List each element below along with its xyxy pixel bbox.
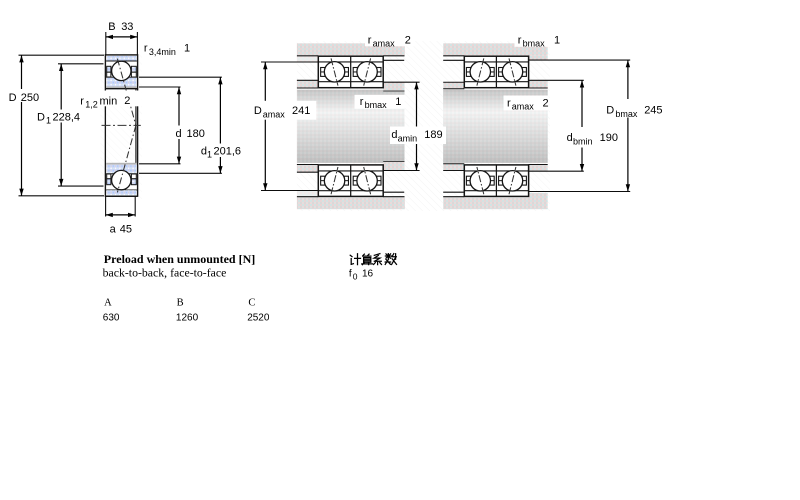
svg-text:190: 190 xyxy=(600,132,618,144)
svg-text:1260: 1260 xyxy=(176,312,199,323)
svg-text:245: 245 xyxy=(644,105,662,117)
svg-text:1: 1 xyxy=(184,43,190,55)
svg-text:amax: amax xyxy=(373,38,396,48)
svg-text:a: a xyxy=(110,224,117,236)
svg-text:2: 2 xyxy=(543,98,549,110)
svg-text:33: 33 xyxy=(121,21,133,33)
svg-text:bmax: bmax xyxy=(615,109,638,119)
svg-text:B: B xyxy=(108,21,115,33)
svg-text:r: r xyxy=(368,34,372,46)
svg-text:D: D xyxy=(37,111,45,123)
svg-text:r: r xyxy=(144,43,148,55)
svg-text:180: 180 xyxy=(187,128,205,140)
svg-text:bmin: bmin xyxy=(573,136,593,146)
svg-text:back-to-back, face-to-face: back-to-back, face-to-face xyxy=(103,266,227,280)
svg-text:1: 1 xyxy=(207,150,212,160)
svg-text:2520: 2520 xyxy=(247,312,270,323)
svg-text:r: r xyxy=(507,98,511,110)
svg-text:250: 250 xyxy=(21,92,39,104)
svg-text:0: 0 xyxy=(353,271,358,281)
svg-text:f: f xyxy=(349,268,352,279)
svg-text:2: 2 xyxy=(405,34,411,46)
svg-text:d: d xyxy=(567,132,573,144)
svg-text:min: min xyxy=(100,96,118,108)
svg-text:amax: amax xyxy=(263,109,286,119)
svg-text:241: 241 xyxy=(292,105,310,117)
svg-text:1: 1 xyxy=(46,115,51,125)
svg-text:bmax: bmax xyxy=(365,100,388,110)
svg-text:r: r xyxy=(518,35,522,47)
svg-text:1: 1 xyxy=(554,35,560,47)
svg-text:2: 2 xyxy=(124,95,130,107)
svg-text:201,6: 201,6 xyxy=(214,146,242,158)
svg-text:228,4: 228,4 xyxy=(53,111,81,123)
svg-text:d: d xyxy=(391,129,397,141)
svg-text:r: r xyxy=(360,96,364,108)
svg-text:D: D xyxy=(9,92,17,104)
svg-text:B: B xyxy=(177,297,184,308)
svg-text:D: D xyxy=(254,105,262,117)
svg-text:630: 630 xyxy=(103,312,120,323)
svg-text:189: 189 xyxy=(424,129,442,141)
svg-text:A: A xyxy=(104,297,112,308)
svg-text:1,2: 1,2 xyxy=(85,100,98,110)
svg-text:1: 1 xyxy=(395,96,401,108)
svg-text:16: 16 xyxy=(362,268,374,279)
svg-text:45: 45 xyxy=(120,224,132,236)
svg-text:Preload when unmounted [N]: Preload when unmounted [N] xyxy=(104,252,255,266)
svg-text:D: D xyxy=(606,105,614,117)
svg-text:amin: amin xyxy=(398,133,418,143)
svg-text:d: d xyxy=(176,128,182,140)
svg-text:C: C xyxy=(248,297,255,308)
svg-text:r: r xyxy=(80,96,84,108)
svg-text:bmax: bmax xyxy=(523,39,546,49)
svg-text:amax: amax xyxy=(512,102,535,112)
svg-text:3,4min: 3,4min xyxy=(149,47,176,57)
